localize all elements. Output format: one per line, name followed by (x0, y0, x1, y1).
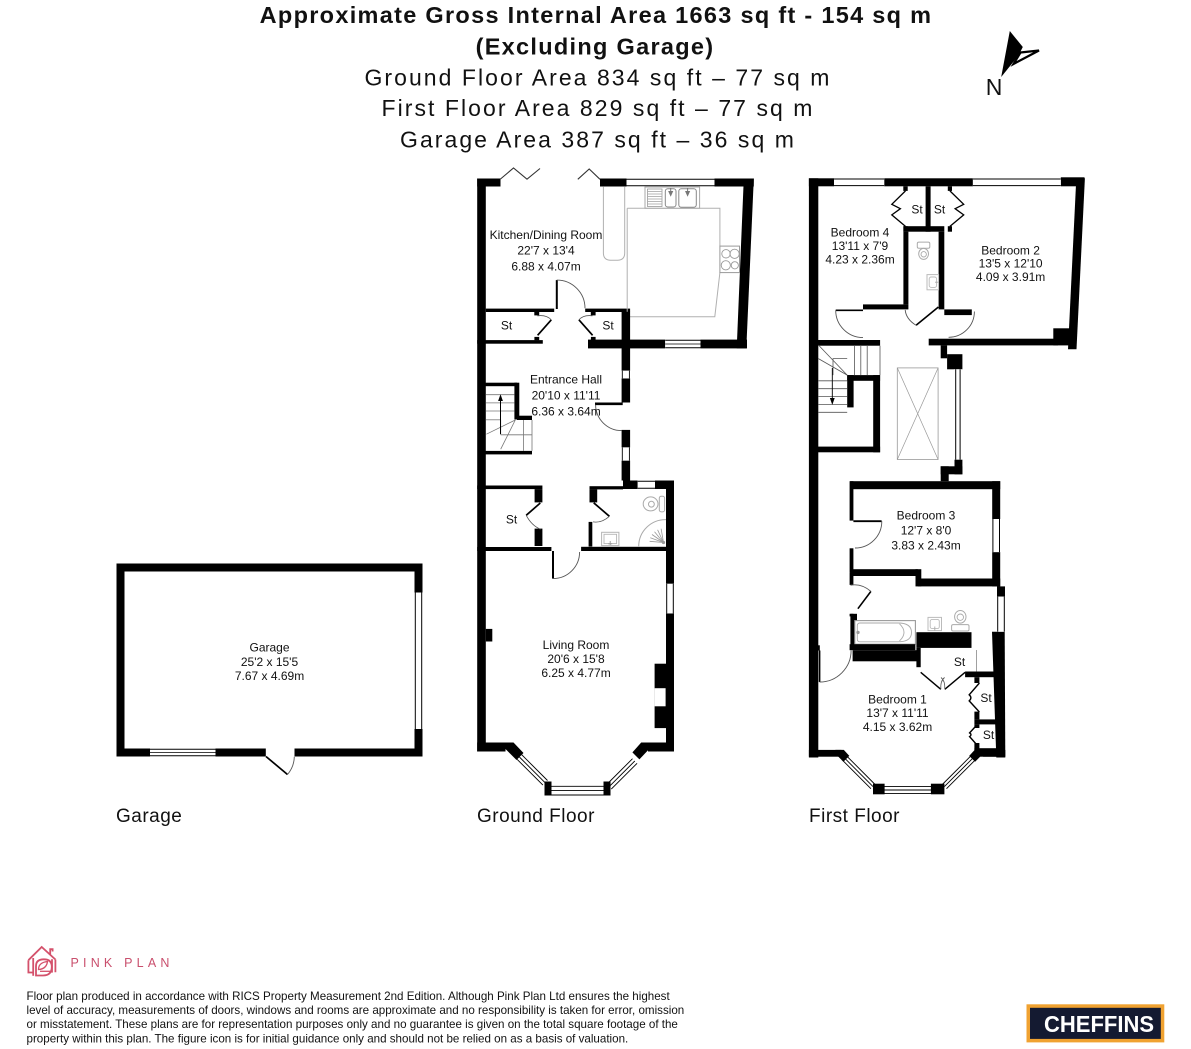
svg-text:7.67 x 4.69m: 7.67 x 4.69m (235, 669, 304, 683)
svg-text:Bedroom 1: Bedroom 1 (868, 693, 927, 707)
svg-text:Bedroom 3: Bedroom 3 (897, 509, 956, 523)
svg-text:3.83 x 2.43m: 3.83 x 2.43m (891, 538, 960, 552)
svg-text:Ground Floor Area 834 sq ft –: Ground Floor Area 834 sq ft – 77 sq m (364, 65, 831, 91)
svg-text:13'11 x 7'9: 13'11 x 7'9 (832, 239, 889, 253)
svg-text:Garage: Garage (116, 806, 182, 827)
svg-text:Floor plan produced in accorda: Floor plan produced in accordance with R… (27, 990, 671, 1003)
svg-text:4.23 x 2.36m: 4.23 x 2.36m (825, 252, 894, 266)
svg-text:Living Room: Living Room (543, 638, 610, 652)
svg-text:Approximate Gross Internal Are: Approximate Gross Internal Area 1663 sq … (260, 2, 933, 28)
svg-text:Garage: Garage (249, 641, 289, 655)
svg-text:Bedroom 4: Bedroom 4 (831, 226, 890, 240)
svg-text:20'10 x 11'11: 20'10 x 11'11 (532, 389, 601, 403)
svg-text:Entrance Hall: Entrance Hall (530, 373, 602, 387)
svg-text:First Floor: First Floor (809, 806, 900, 827)
svg-text:4.15 x 3.62m: 4.15 x 3.62m (863, 720, 932, 734)
svg-text:St: St (934, 203, 946, 217)
svg-text:6.36 x 3.64m: 6.36 x 3.64m (531, 405, 600, 419)
svg-text:20'6 x 15'8: 20'6 x 15'8 (547, 652, 605, 666)
svg-text:22'7 x 13'4: 22'7 x 13'4 (517, 244, 575, 258)
svg-text:St: St (911, 203, 923, 217)
svg-text:St: St (983, 728, 995, 742)
svg-text:St: St (980, 691, 992, 705)
svg-text:St: St (602, 319, 614, 333)
svg-text:Kitchen/Dining Room: Kitchen/Dining Room (490, 228, 603, 242)
svg-text:St: St (506, 512, 518, 526)
svg-text:St: St (501, 319, 513, 333)
svg-text:13'5 x 12'10: 13'5 x 12'10 (979, 257, 1043, 271)
svg-text:N: N (986, 74, 1003, 100)
svg-text:25'2 x 15'5: 25'2 x 15'5 (241, 655, 299, 669)
svg-text:or misstatement. These plans a: or misstatement. These plans are for rep… (27, 1018, 678, 1031)
svg-text:level of accuracy, measurement: level of accuracy, measurements of doors… (27, 1004, 685, 1017)
svg-text:6.25 x 4.77m: 6.25 x 4.77m (541, 666, 610, 680)
svg-text:St: St (954, 655, 966, 669)
svg-text:PINK PLAN: PINK PLAN (71, 956, 174, 970)
svg-text:property within this plan. The: property within this plan. The figure ic… (27, 1032, 629, 1045)
svg-text:Ground Floor: Ground Floor (477, 806, 595, 827)
svg-text:4.09 x 3.91m: 4.09 x 3.91m (976, 270, 1045, 284)
svg-text:CHEFFINS: CHEFFINS (1044, 1011, 1154, 1037)
svg-text:(Excluding Garage): (Excluding Garage) (476, 34, 715, 60)
svg-text:Garage Area 387 sq ft – 36 sq: Garage Area 387 sq ft – 36 sq m (400, 126, 796, 152)
svg-text:12'7 x 8'0: 12'7 x 8'0 (901, 523, 952, 537)
svg-text:First Floor Area 829 sq ft – 7: First Floor Area 829 sq ft – 77 sq m (381, 95, 814, 121)
svg-text:6.88 x 4.07m: 6.88 x 4.07m (511, 260, 580, 274)
svg-text:13'7 x 11'11: 13'7 x 11'11 (866, 706, 929, 720)
svg-text:Bedroom 2: Bedroom 2 (981, 243, 1040, 257)
